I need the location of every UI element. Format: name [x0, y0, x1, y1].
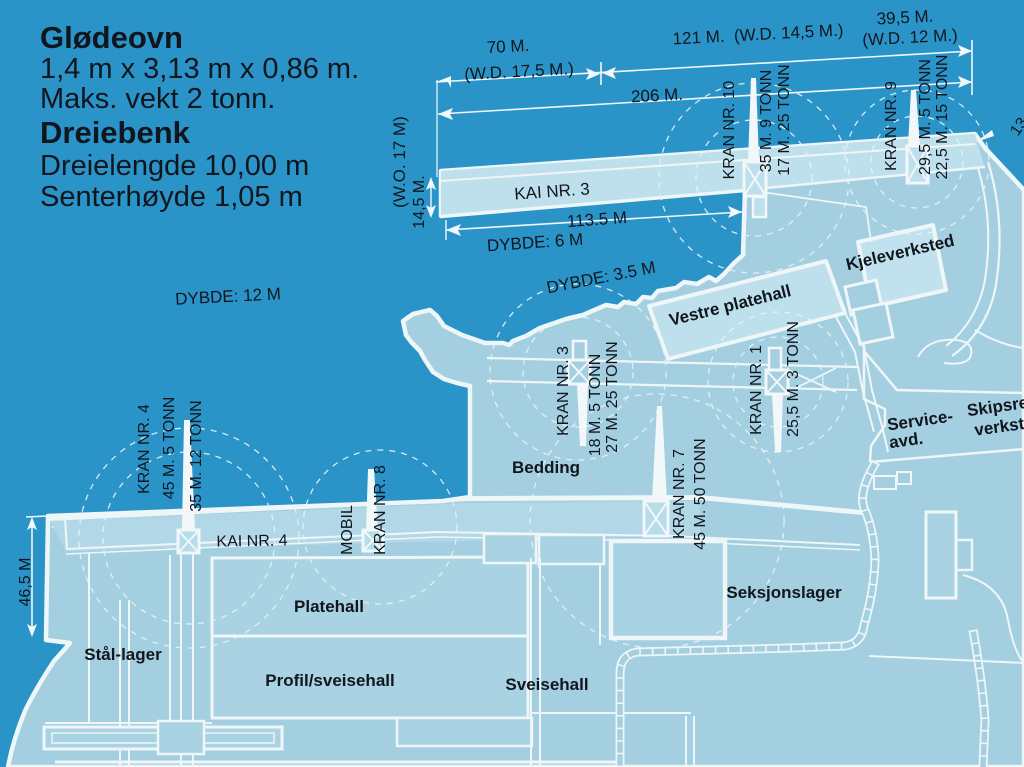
- svg-text:KRAN NR. 10: KRAN NR. 10: [721, 81, 738, 180]
- svg-text:Maks. vekt 2 tonn.: Maks. vekt 2 tonn.: [40, 83, 275, 115]
- svg-text:KRAN NR. 1: KRAN NR. 1: [748, 345, 765, 435]
- svg-text:35 M. 12 TONN: 35 M. 12 TONN: [188, 400, 205, 511]
- svg-text:39,5 M.: 39,5 M.: [876, 7, 934, 29]
- svg-text:Profil/sveisehall: Profil/sveisehall: [265, 671, 394, 690]
- svg-text:17 M. 25 TONN: 17 M. 25 TONN: [776, 64, 793, 175]
- svg-text:1,4 m x 3,13 m x 0,86 m.: 1,4 m x 3,13 m x 0,86 m.: [40, 53, 359, 85]
- svg-text:KRAN NR. 7: KRAN NR. 7: [671, 449, 688, 539]
- svg-text:KAI NR. 4: KAI NR. 4: [216, 532, 288, 550]
- svg-text:Glødeovn: Glødeovn: [40, 20, 183, 55]
- svg-text:Dreielengde 10,00 m: Dreielengde 10,00 m: [40, 150, 309, 182]
- svg-text:MOBIL: MOBIL: [339, 505, 356, 555]
- svg-text:KRAN NR. 9: KRAN NR. 9: [883, 81, 900, 171]
- svg-text:45 M. 5 TONN: 45 M. 5 TONN: [161, 397, 178, 500]
- svg-text:Platehall: Platehall: [294, 597, 364, 616]
- svg-text:25,5 M. 3 TONN: 25,5 M. 3 TONN: [785, 321, 802, 437]
- svg-text:27 M. 25 TONN: 27 M. 25 TONN: [604, 341, 621, 452]
- svg-text:45 M. 50 TONN: 45 M. 50 TONN: [692, 438, 709, 549]
- svg-text:(W.O. 17 M): (W.O. 17 M): [390, 116, 409, 208]
- svg-text:Stål-lager: Stål-lager: [84, 645, 162, 664]
- svg-text:KRAN NR. 8: KRAN NR. 8: [372, 465, 389, 555]
- svg-text:Bedding: Bedding: [512, 458, 580, 477]
- svg-text:22,5 M. 15 TONN: 22,5 M. 15 TONN: [934, 55, 951, 180]
- svg-text:14,5 M.: 14,5 M.: [411, 175, 428, 228]
- svg-text:29,5 M. 5 TONN: 29,5 M. 5 TONN: [917, 59, 934, 175]
- svg-text:Dreiebenk: Dreiebenk: [40, 115, 191, 150]
- svg-text:46,5 M: 46,5 M: [17, 558, 34, 607]
- svg-text:18 M. 5 TONN: 18 M. 5 TONN: [587, 354, 604, 457]
- svg-text:35 M. 9 TONN: 35 M. 9 TONN: [758, 70, 775, 173]
- svg-text:Sveisehall: Sveisehall: [505, 675, 588, 694]
- svg-text:KRAN NR. 4: KRAN NR. 4: [136, 404, 153, 494]
- svg-text:Seksjonslager: Seksjonslager: [726, 583, 842, 602]
- svg-text:70 M.: 70 M.: [486, 36, 529, 57]
- svg-text:206 M.: 206 M.: [631, 85, 684, 107]
- svg-text:Senterhøyde 1,05 m: Senterhøyde 1,05 m: [40, 181, 303, 213]
- svg-text:KRAN NR. 3: KRAN NR. 3: [555, 346, 572, 436]
